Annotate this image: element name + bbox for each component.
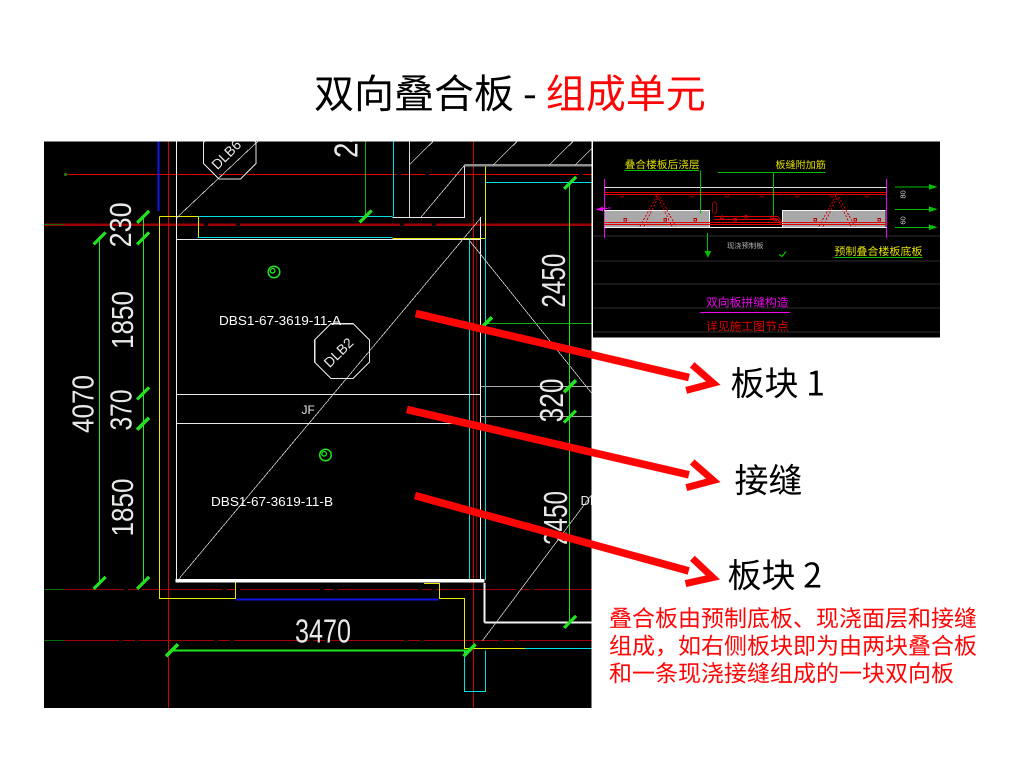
- svg-text:80: 80: [899, 190, 908, 198]
- svg-text:370: 370: [104, 390, 139, 431]
- svg-text:1850: 1850: [105, 479, 140, 537]
- svg-text:JF: JF: [302, 403, 315, 417]
- svg-text:3470: 3470: [295, 613, 351, 650]
- svg-text:2450: 2450: [535, 254, 572, 308]
- svg-text:230: 230: [103, 202, 138, 247]
- svg-text:320: 320: [533, 378, 570, 422]
- svg-text:DBS1-67-3619-11-A: DBS1-67-3619-11-A: [219, 313, 341, 328]
- svg-text:60: 60: [899, 216, 908, 224]
- svg-text:DBS1-67-3619-11-B: DBS1-67-3619-11-B: [211, 494, 333, 509]
- svg-text:4070: 4070: [66, 375, 101, 433]
- svg-text:1850: 1850: [105, 291, 140, 349]
